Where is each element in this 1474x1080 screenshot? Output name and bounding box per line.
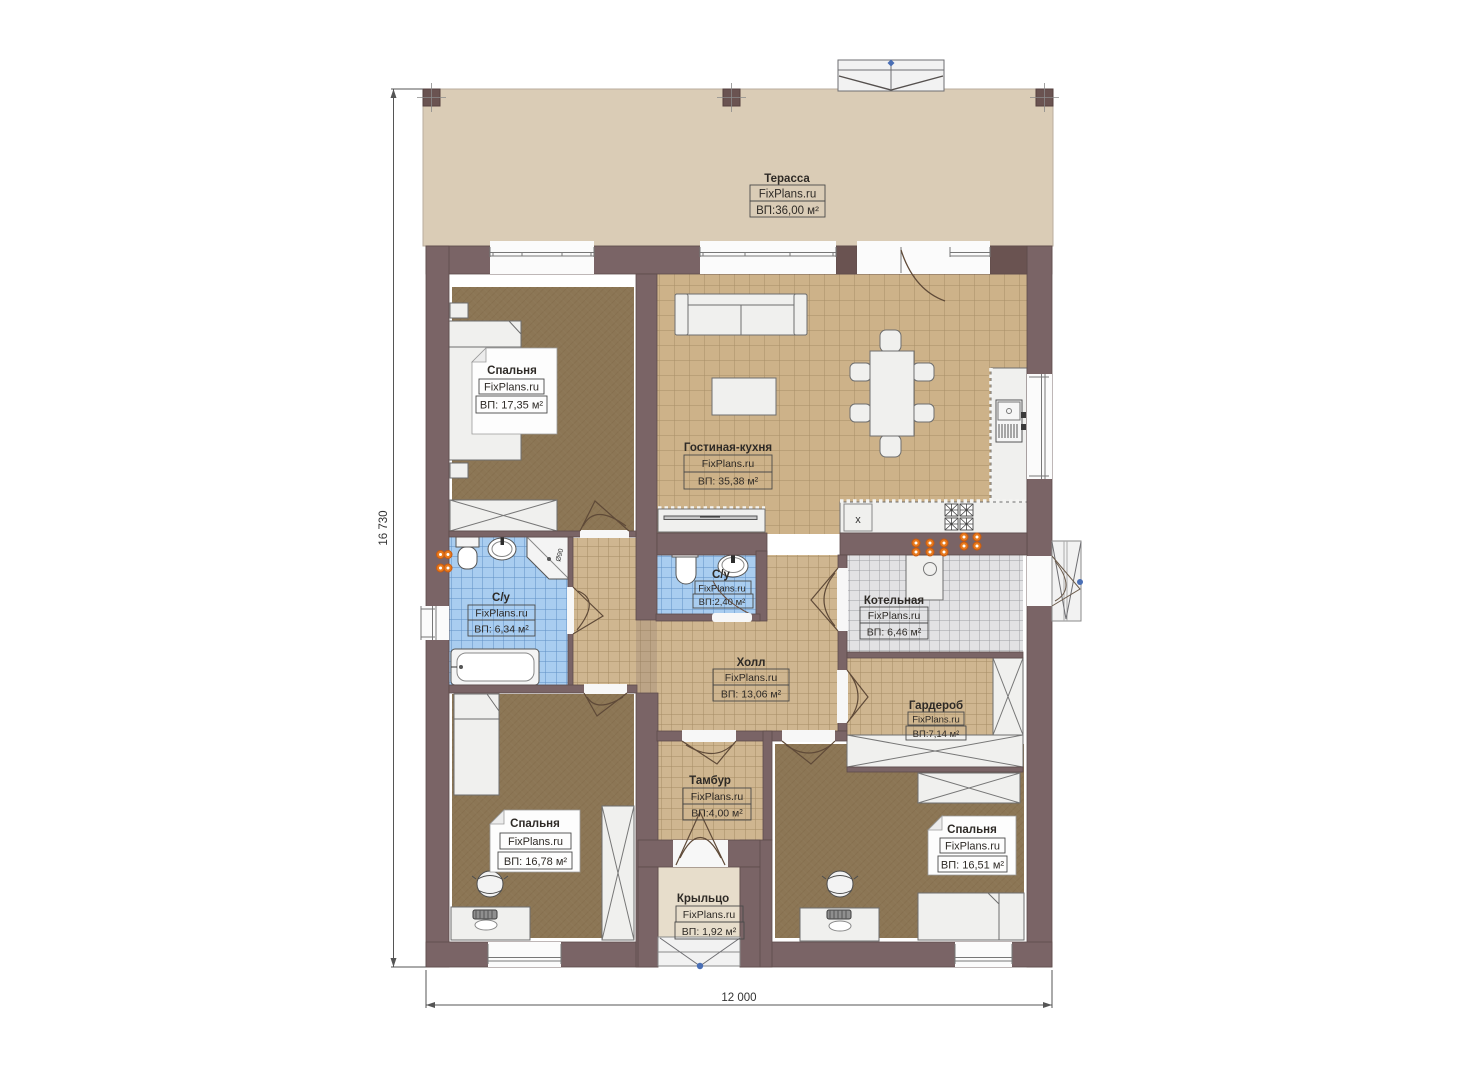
- svg-text:ВП: 16,78 м²: ВП: 16,78 м²: [504, 856, 568, 868]
- svg-text:FixPlans.ru: FixPlans.ru: [945, 841, 1000, 853]
- svg-text:ВП: 6,34 м²: ВП: 6,34 м²: [474, 624, 529, 636]
- svg-text:FixPlans.ru: FixPlans.ru: [725, 672, 778, 684]
- svg-text:С/у: С/у: [492, 592, 511, 604]
- svg-text:ВП: 6,46 м²: ВП: 6,46 м²: [867, 627, 922, 639]
- svg-text:ВП: 16,51 м²: ВП: 16,51 м²: [941, 860, 1005, 872]
- svg-text:Спальня: Спальня: [487, 365, 537, 377]
- svg-text:Крыльцо: Крыльцо: [677, 893, 729, 905]
- svg-text:ВП:4,00 м²: ВП:4,00 м²: [691, 808, 743, 820]
- svg-text:FixPlans.ru: FixPlans.ru: [912, 715, 960, 726]
- svg-text:Спальня: Спальня: [947, 824, 997, 836]
- svg-text:16 730: 16 730: [378, 510, 390, 545]
- svg-text:ВП: 1,92 м²: ВП: 1,92 м²: [682, 926, 737, 938]
- svg-text:FixPlans.ru: FixPlans.ru: [508, 836, 563, 848]
- svg-text:Тамбур: Тамбур: [689, 775, 731, 787]
- svg-text:FixPlans.ru: FixPlans.ru: [702, 458, 755, 470]
- svg-text:Гардероб: Гардероб: [909, 700, 963, 712]
- svg-text:FixPlans.ru: FixPlans.ru: [484, 382, 539, 394]
- svg-text:ВП:7,14 м²: ВП:7,14 м²: [913, 729, 960, 740]
- svg-text:Гостиная-кухня: Гостиная-кухня: [684, 442, 772, 454]
- svg-text:ВП: 17,35 м²: ВП: 17,35 м²: [480, 400, 544, 412]
- svg-text:FixPlans.ru: FixPlans.ru: [759, 189, 817, 201]
- svg-text:ВП: 13,06 м²: ВП: 13,06 м²: [721, 689, 782, 701]
- svg-text:Терасса: Терасса: [764, 173, 810, 185]
- svg-text:FixPlans.ru: FixPlans.ru: [868, 610, 921, 622]
- svg-text:FixPlans.ru: FixPlans.ru: [691, 791, 744, 803]
- svg-text:С/у: С/у: [712, 569, 731, 581]
- svg-text:ВП:2,40 м²: ВП:2,40 м²: [699, 597, 746, 608]
- svg-text:FixPlans.ru: FixPlans.ru: [698, 584, 746, 595]
- svg-text:ВП:36,00 м²: ВП:36,00 м²: [756, 205, 819, 217]
- svg-text:x: x: [855, 514, 861, 526]
- svg-text:Спальня: Спальня: [510, 818, 560, 830]
- svg-text:FixPlans.ru: FixPlans.ru: [475, 608, 528, 620]
- svg-text:Котельная: Котельная: [864, 595, 924, 607]
- svg-text:ВП: 35,38 м²: ВП: 35,38 м²: [698, 476, 759, 488]
- svg-text:FixPlans.ru: FixPlans.ru: [683, 909, 736, 921]
- svg-text:12 000: 12 000: [721, 992, 756, 1004]
- svg-text:Холл: Холл: [737, 657, 766, 669]
